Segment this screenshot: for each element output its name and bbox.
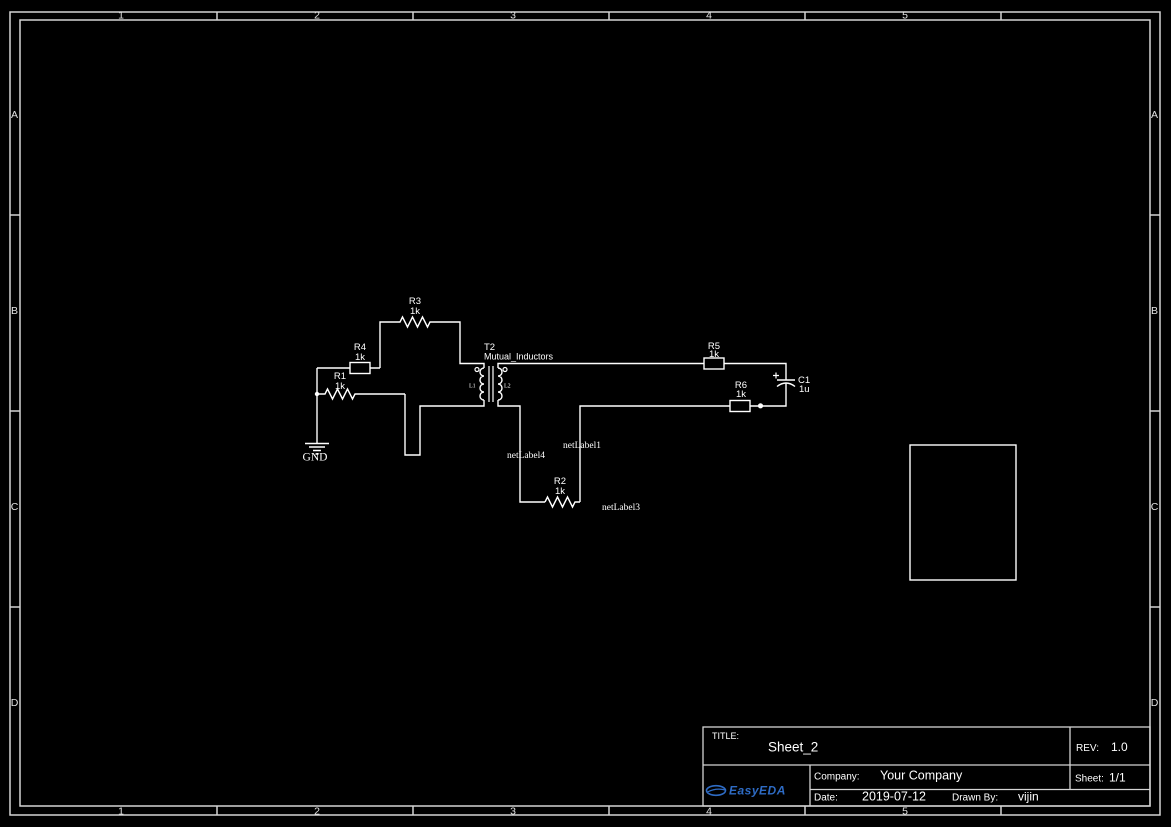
sheet-value[interactable]: 1/1	[1109, 771, 1126, 785]
resistor-body[interactable]	[380, 317, 484, 368]
gnd-label[interactable]: GND	[303, 452, 328, 464]
resistor-R5[interactable]: R5 1k	[704, 341, 724, 369]
component-value[interactable]: 1k	[736, 389, 746, 400]
schematic-canvas[interactable]: 1 2 3 4 5 1 2 3 4 5 A B C D A B C D R3 1…	[0, 0, 1171, 827]
net-label-1[interactable]: netLabel1	[563, 441, 601, 451]
row-label-right-A: A	[1151, 109, 1158, 121]
col-label-bottom-2: 2	[314, 806, 320, 818]
col-label-top-4: 4	[706, 10, 712, 22]
sheet-frame-inner	[20, 20, 1150, 806]
component-value[interactable]: 1u	[799, 384, 810, 395]
junction-dot	[315, 392, 319, 396]
row-label-right-C: C	[1151, 501, 1159, 513]
plus-icon	[773, 373, 779, 379]
ruler-ticks	[10, 12, 1160, 815]
component-value[interactable]: 1k	[410, 306, 420, 317]
wire-netlabel1-riser[interactable]	[580, 406, 730, 502]
sheet-title[interactable]: Sheet_2	[768, 740, 818, 755]
resistor-R3[interactable]: R3 1k	[380, 296, 484, 368]
wire-secondary-top[interactable]	[498, 364, 704, 369]
col-label-bottom-3: 3	[510, 806, 516, 818]
resistor-R4[interactable]: R4 1k	[350, 342, 370, 374]
resistor-R1[interactable]: R1 1k	[317, 371, 405, 399]
drawn-by-value[interactable]: vijin	[1018, 790, 1039, 804]
transformer-core	[489, 366, 493, 402]
winding-label-L2: L2	[504, 384, 511, 390]
component-value[interactable]: 1k	[709, 349, 719, 360]
col-label-bottom-5: 5	[902, 806, 908, 818]
row-label-right-D: D	[1151, 697, 1159, 709]
winding-L1-coil[interactable]	[480, 368, 484, 400]
sheet-frame-outer	[10, 12, 1160, 815]
resistor-body[interactable]	[730, 401, 750, 412]
component-name[interactable]: Mutual_Inductors	[484, 352, 554, 362]
junction-dot	[758, 403, 763, 408]
row-label-left-C: C	[11, 501, 19, 513]
wire-r5-to-c1[interactable]	[724, 364, 786, 381]
component-value[interactable]: 1k	[555, 486, 565, 497]
blank-rectangle[interactable]	[910, 445, 1016, 580]
component-value[interactable]: 1k	[355, 352, 365, 363]
component-value[interactable]: 1k	[335, 381, 345, 392]
polarity-dot-icon	[475, 368, 479, 372]
row-label-left-D: D	[11, 697, 19, 709]
resistor-body[interactable]	[317, 389, 405, 399]
title-block[interactable]: TITLE: Sheet_2 REV: 1.0 Company: Your Co…	[703, 727, 1150, 806]
sheet-frame: 1 2 3 4 5 1 2 3 4 5 A B C D A B C D	[10, 10, 1160, 818]
easyeda-logo-text: EasyEDA	[729, 784, 786, 798]
net-label-3[interactable]: netLabel3	[602, 503, 640, 513]
col-label-top-2: 2	[314, 10, 320, 22]
wires	[317, 364, 786, 503]
polarity-dot-icon	[503, 368, 507, 372]
sheet-label: Sheet:	[1075, 774, 1104, 785]
date-value[interactable]: 2019-07-12	[862, 790, 926, 804]
drawn-by-label: Drawn By:	[952, 793, 998, 804]
wire-r6-to-c1[interactable]	[750, 383, 786, 406]
row-label-right-B: B	[1151, 305, 1158, 317]
resistor-body[interactable]	[545, 497, 580, 507]
col-label-top-3: 3	[510, 10, 516, 22]
gnd-symbol[interactable]: GND	[303, 444, 329, 464]
resistor-R6[interactable]: R6 1k	[730, 380, 750, 412]
title-label: TITLE:	[712, 731, 739, 741]
rev-value[interactable]: 1.0	[1111, 740, 1128, 754]
col-label-bottom-1: 1	[118, 806, 124, 818]
col-label-top-5: 5	[902, 10, 908, 22]
row-label-left-A: A	[11, 109, 18, 121]
winding-label-L1: L1	[469, 384, 476, 390]
resistor-R2[interactable]: R2 1k	[545, 476, 580, 507]
date-label: Date:	[814, 793, 838, 804]
resistor-body[interactable]	[350, 363, 370, 374]
net-label-4[interactable]: netLabel4	[507, 451, 545, 461]
col-label-bottom-4: 4	[706, 806, 712, 818]
col-label-top-1: 1	[118, 10, 124, 22]
company-value[interactable]: Your Company	[880, 769, 963, 783]
winding-L2-coil[interactable]	[498, 368, 502, 400]
row-label-left-B: B	[11, 305, 18, 317]
transformer-T2[interactable]: L1 L2 T2 Mutual_Inductors	[469, 342, 554, 402]
rev-label: REV:	[1076, 743, 1099, 754]
easyeda-logo-swoosh-line	[708, 789, 726, 792]
easyeda-logo: EasyEDA	[707, 784, 786, 798]
wire-bottom-left-u[interactable]	[405, 394, 484, 455]
company-label: Company:	[814, 772, 860, 783]
capacitor-C1[interactable]: C1 1u	[773, 373, 810, 396]
